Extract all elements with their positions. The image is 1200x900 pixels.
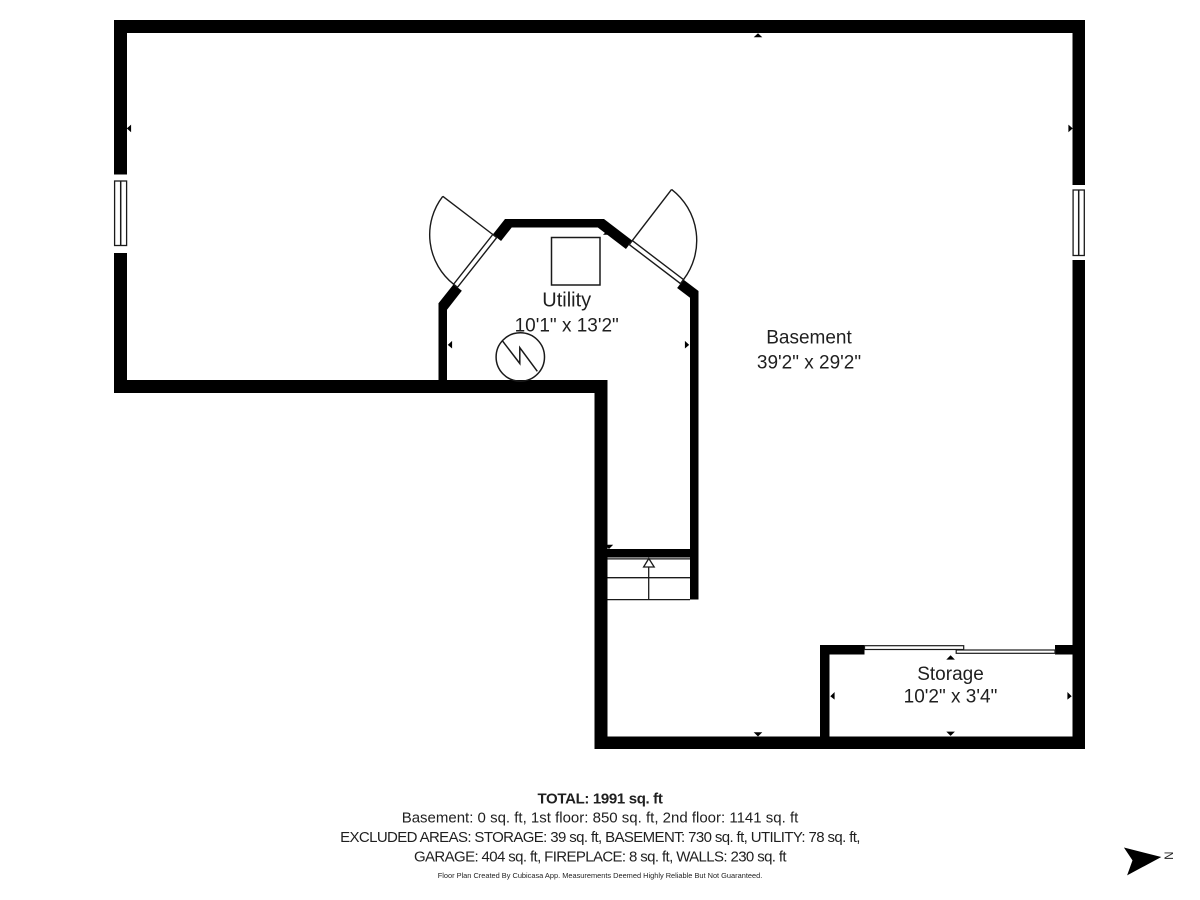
svg-text:Utility: Utility (542, 290, 591, 312)
svg-text:Basement: 0 sq. ft, 1st floor:: Basement: 0 sq. ft, 1st floor: 850 sq. f… (402, 810, 799, 827)
svg-text:TOTAL: 1991 sq. ft: TOTAL: 1991 sq. ft (537, 791, 662, 808)
svg-text:GARAGE: 404 sq. ft, FIREPLACE:: GARAGE: 404 sq. ft, FIREPLACE: 8 sq. ft,… (414, 849, 787, 866)
svg-text:10'2" x 3'4": 10'2" x 3'4" (904, 687, 998, 708)
svg-text:39'2" x 29'2": 39'2" x 29'2" (757, 352, 861, 373)
svg-text:N: N (1162, 852, 1174, 860)
svg-text:Floor Plan Created By Cubicasa: Floor Plan Created By Cubicasa App. Meas… (438, 871, 763, 880)
svg-text:Storage: Storage (917, 664, 984, 685)
svg-text:Basement: Basement (766, 328, 852, 349)
svg-text:10'1" x 13'2": 10'1" x 13'2" (515, 316, 619, 337)
svg-text:EXCLUDED AREAS: STORAGE: 39 sq: EXCLUDED AREAS: STORAGE: 39 sq. ft, BASE… (340, 829, 860, 846)
